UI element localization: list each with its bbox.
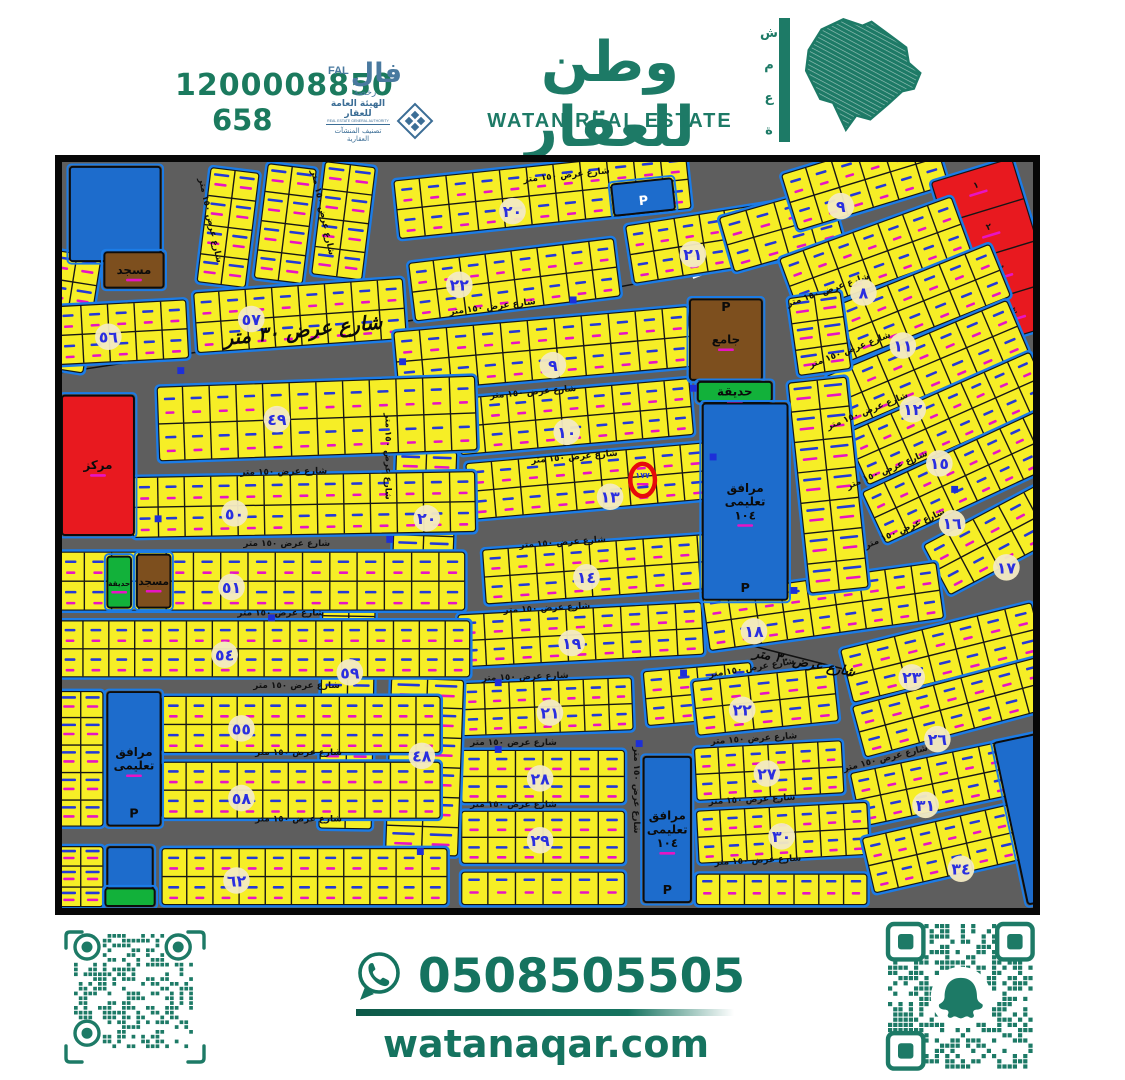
map-canvas: ١٢٣٤مسجدPجامعPحديقةمرافقتعليمى١٠٤Pمركزحد…	[62, 162, 1033, 908]
svg-text:٥٤: ٥٤	[215, 646, 234, 665]
svg-text:٦٢: ٦٢	[227, 871, 247, 890]
utility-dot	[495, 679, 502, 686]
block-number-badge: ٦٢	[223, 867, 250, 894]
svg-text:١١: ١١	[893, 336, 912, 355]
utility-dot	[690, 385, 697, 392]
svg-text:٢٣: ٢٣	[902, 668, 922, 687]
map-block	[161, 695, 442, 754]
block-number-badge: ١٤	[573, 564, 600, 591]
facility-area: مرافقتعليمىP	[105, 690, 163, 828]
mosque-area: مسجد	[134, 552, 172, 610]
mosque-area: جامعP	[687, 297, 764, 382]
authority-name-en: REAL ESTATE GENERAL AUTHORITY	[326, 119, 390, 125]
classification-number: 658	[212, 103, 273, 137]
footer-divider	[356, 1009, 734, 1016]
svg-text:١٠٤: ١٠٤	[656, 836, 678, 850]
map-block	[62, 619, 471, 678]
block-number-badge: ٢١	[680, 241, 707, 268]
utility-dot	[710, 454, 717, 461]
block-number-badge: ٢٣	[898, 664, 925, 691]
logo-letter: م	[764, 58, 774, 73]
svg-text:مركز: مركز	[83, 458, 113, 473]
svg-text:مرافق: مرافق	[649, 809, 686, 824]
mosque-area: مسجد	[102, 250, 166, 290]
utility-dot	[636, 740, 643, 747]
block-number-badge: ١٥	[926, 450, 953, 477]
utility-dot	[790, 587, 797, 594]
block-number-badge: ٥٦	[95, 323, 122, 350]
svg-text:٣٠: ٣٠	[772, 827, 791, 846]
svg-text:١٨: ١٨	[744, 622, 764, 641]
facility-area	[67, 164, 163, 263]
svg-text:٥١: ٥١	[222, 578, 241, 597]
map-block	[62, 690, 104, 827]
park-area	[103, 886, 157, 908]
svg-text:١٥: ١٥	[930, 454, 949, 473]
utility-dot	[570, 296, 577, 303]
block-number-badge: ٩	[540, 352, 567, 379]
street-label: شارع عرض ١٥٠ متر	[236, 609, 324, 619]
brand-title-arabic: وطن للعقار	[455, 30, 765, 160]
svg-text:١٠٤: ١٠٤	[734, 508, 756, 522]
street-label: شارع عرض ١٥٠ متر	[242, 539, 330, 549]
svg-text:مسجد: مسجد	[117, 263, 152, 277]
block-number-badge: ١٠	[553, 419, 580, 446]
logo-letter: ة	[765, 123, 773, 138]
svg-text:١٢: ١٢	[903, 400, 923, 419]
svg-text:٨: ٨	[859, 283, 869, 302]
svg-text:P: P	[129, 807, 138, 822]
fal-license-logo: FAL فال رخصة	[334, 60, 396, 98]
svg-text:٩: ٩	[836, 197, 846, 216]
whatsapp-number: 0508505505	[418, 949, 745, 1004]
block-number-badge: ٢٧	[754, 760, 781, 787]
block-number-badge: ١٧	[993, 554, 1020, 581]
website-qr-code	[60, 926, 210, 1073]
svg-text:حديقة: حديقة	[108, 579, 130, 588]
brand-title-english: WATAN REAL ESTATE	[455, 110, 765, 133]
logo-letter: ع	[765, 91, 774, 106]
utility-dot	[177, 367, 184, 374]
real-estate-flyer: { "header": { "unified_number": "1200008…	[0, 0, 1125, 1080]
street-label: شارع عرض ١٥٠ متر	[469, 738, 557, 748]
svg-text:٣٤: ٣٤	[951, 860, 970, 879]
svg-text:٢١: ٢١	[683, 245, 702, 264]
fal-logo-sub: رخصة	[334, 88, 396, 98]
street-label: شارع عرض ١٥٠ متر	[239, 466, 327, 478]
svg-text:٢١: ٢١	[540, 704, 559, 723]
logo-divider-bar	[779, 18, 790, 142]
block-number-badge: ٢٢	[729, 696, 756, 723]
svg-text:P: P	[721, 300, 730, 315]
svg-text:P: P	[638, 193, 649, 209]
svg-text:مرافق: مرافق	[727, 481, 764, 496]
svg-text:٥٥: ٥٥	[232, 719, 251, 738]
svg-text:P: P	[740, 581, 749, 596]
block-number-badge: ٢٦	[924, 726, 951, 753]
svg-text:تعليمى: تعليمى	[114, 759, 155, 773]
utility-dot	[155, 515, 162, 522]
block-number-badge: ٢١	[537, 699, 564, 726]
block-number-badge: ٢٠	[499, 198, 526, 225]
svg-text:P: P	[663, 883, 672, 898]
svg-text:حديقة: حديقة	[717, 385, 752, 399]
logo-vertical-letters: ش م ع ة	[760, 26, 778, 138]
svg-text:٥٩: ٥٩	[340, 663, 360, 682]
snapchat-qr-code	[882, 920, 1040, 1077]
block-number-badge: ٤٨	[409, 743, 436, 770]
svg-text:مرافق: مرافق	[115, 745, 152, 760]
street-label: شارع عرض ١٥٠ متر	[469, 800, 557, 810]
block-number-badge: ٣١	[912, 792, 939, 819]
street-label: شارع عرض ١٥٠ متر	[254, 748, 342, 758]
facility-area: مرافقتعليمى١٠٤P	[700, 401, 790, 602]
fal-logo-ar: فال	[351, 60, 402, 87]
park-area: حديقة	[105, 554, 134, 610]
svg-text:تعليمى: تعليمى	[725, 495, 766, 509]
block-number-badge: ٣٤	[948, 855, 975, 882]
website-url: watanaqar.com	[366, 1022, 726, 1066]
svg-text:٥٧: ٥٧	[242, 310, 262, 329]
utility-dot	[399, 358, 406, 365]
block-number-badge: ١٩	[558, 630, 585, 657]
whatsapp-icon	[352, 948, 406, 1004]
svg-text:١٤: ١٤	[577, 568, 596, 587]
fal-logo-en: FAL	[328, 65, 349, 77]
block-number-badge: ٨	[850, 279, 877, 306]
block-number-badge: ٩	[827, 193, 854, 220]
block-number-badge: ٥٧	[238, 306, 265, 333]
authority-name-ar: الهيئة العامة للعقار	[326, 99, 390, 119]
block-number-badge: ٢٨	[527, 765, 554, 792]
svg-text:٢٢: ٢٢	[733, 701, 753, 720]
svg-text:٢٠: ٢٠	[503, 202, 522, 221]
block-number-badge: ١١	[890, 332, 917, 359]
saudi-map-logo	[796, 6, 924, 153]
svg-text:٥٨: ٥٨	[232, 789, 252, 808]
utility-dot	[495, 746, 502, 753]
center-area: مركز	[62, 393, 136, 537]
utility-dot	[951, 486, 958, 493]
svg-text:٤٨: ٤٨	[412, 747, 432, 766]
svg-text:١٠: ١٠	[557, 423, 576, 442]
block-number-badge: ٤٩	[264, 406, 291, 433]
svg-text:٥٦: ٥٦	[99, 328, 119, 347]
block-number-badge: ١٣	[597, 483, 624, 510]
block-number-badge: ٢٠	[413, 505, 440, 532]
street-label: شارع عرض ١٥٠ متر	[254, 815, 342, 825]
svg-text:١٣: ١٣	[600, 488, 620, 507]
svg-text:١٩: ١٩	[562, 634, 582, 653]
svg-text:مسجد: مسجد	[138, 576, 169, 588]
block-number-badge: ١٦	[939, 510, 966, 537]
utility-dot	[268, 615, 275, 622]
logo-letter: ش	[760, 26, 778, 41]
block-number-badge: ٥٠	[221, 500, 248, 527]
block-number-badge: ٣٠	[768, 823, 795, 850]
map-block	[695, 873, 868, 906]
utility-dot	[680, 669, 687, 676]
svg-text:٥٠: ٥٠	[225, 504, 244, 523]
block-number-badge: ١٨	[741, 618, 768, 645]
block-number-badge: ٢٩	[527, 827, 554, 854]
svg-text:٢٨: ٢٨	[530, 769, 550, 788]
rega-authority-logo: الهيئة العامة للعقار REAL ESTATE GENERAL…	[326, 99, 435, 143]
svg-text:٢٧: ٢٧	[757, 764, 777, 783]
map-block	[62, 845, 104, 908]
block-number-badge: ١٢	[899, 396, 926, 423]
svg-text:٢٦: ٢٦	[928, 730, 948, 749]
map-block	[161, 761, 442, 820]
map-block	[156, 375, 479, 463]
map-block	[460, 871, 626, 906]
street-label: شارع عرض ١٥٠ متر	[252, 681, 340, 691]
svg-text:٢٩: ٢٩	[530, 831, 550, 850]
street-label: شارع عرض ١٥٠ متر	[382, 412, 392, 499]
block-number-badge: ٥٥	[228, 715, 255, 742]
map-block	[62, 298, 190, 366]
master-plan-map: ١٢٣٤مسجدPجامعPحديقةمرافقتعليمى١٠٤Pمركزحد…	[55, 155, 1040, 915]
block-number-badge: ٥٩	[337, 659, 364, 686]
svg-text:٤٩: ٤٩	[267, 410, 287, 429]
svg-text:١٧: ١٧	[997, 558, 1017, 577]
svg-text:٢٢: ٢٢	[450, 276, 470, 295]
svg-text:٣١: ٣١	[916, 796, 935, 815]
block-number-badge: ٥٨	[228, 785, 255, 812]
svg-text:٢٠: ٢٠	[417, 509, 436, 528]
block-number-badge: ٢٢	[446, 271, 473, 298]
block-number-badge: ٥١	[218, 574, 245, 601]
authority-diamond-icon	[395, 101, 435, 141]
map-block	[161, 847, 449, 906]
svg-text:١٦: ١٦	[943, 514, 963, 533]
utility-dot	[386, 536, 393, 543]
block-number-badge: ٥٤	[211, 642, 238, 669]
street-label: شارع عرض ١٥٠ متر	[631, 746, 641, 833]
facility-area: P	[608, 176, 677, 219]
svg-text:٩: ٩	[548, 356, 558, 375]
utility-dot	[417, 848, 424, 855]
svg-text:جامع: جامع	[712, 333, 740, 348]
svg-text:تعليمى: تعليمى	[647, 822, 688, 836]
authority-subtitle: تصنيف المنشآت العقارية	[326, 127, 390, 143]
facility-area: مرافقتعليمى١٠٤P	[641, 754, 693, 904]
svg-text:١٧٧: ١٧٧	[635, 471, 650, 480]
